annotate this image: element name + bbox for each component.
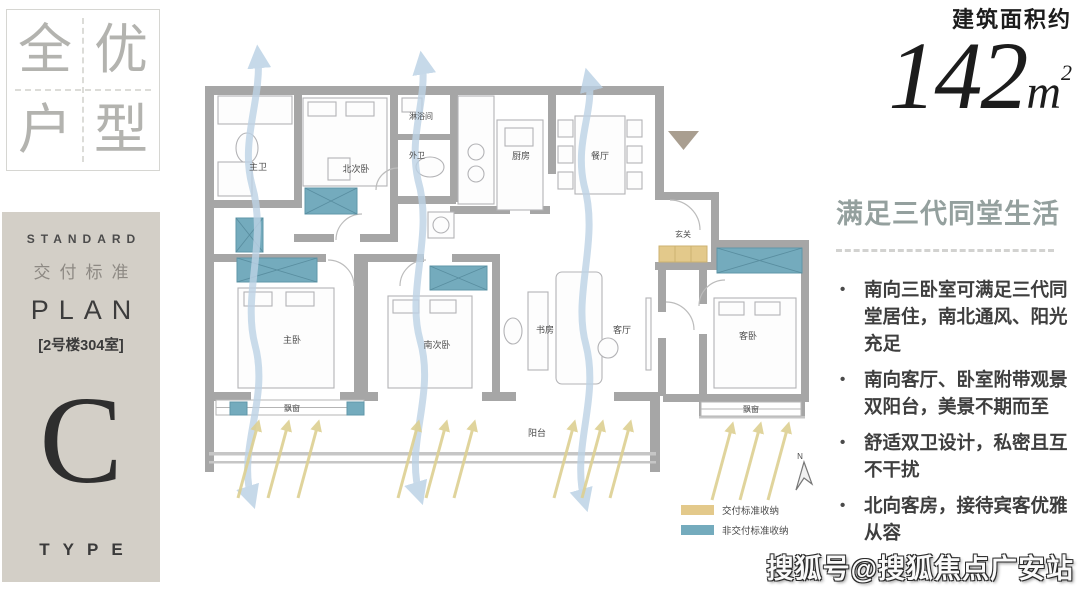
compass-arrow-icon bbox=[796, 462, 812, 490]
badge-char: 户 bbox=[7, 90, 83, 170]
balcony-rail bbox=[209, 452, 656, 464]
selling-points-list: 南向三卧室可满足三代同堂居住，南北通风、阳光充足 南向客厅、卧室附带观景双阳台，… bbox=[836, 276, 1074, 546]
room-label-balcony: 阳台 bbox=[528, 427, 546, 438]
entrance-marker-triangle bbox=[668, 131, 699, 150]
legend-swatch-non-standard bbox=[681, 525, 714, 535]
quality-layout-badge: 全 优 户 型 bbox=[6, 9, 160, 171]
room-label-guest-bedroom: 客卧 bbox=[739, 330, 757, 341]
room-label-shower: 淋浴间 bbox=[409, 111, 433, 121]
selling-point: 南向三卧室可满足三代同堂居住，南北通风、阳光充足 bbox=[836, 276, 1074, 357]
delivery-standard-label: 交付标准 bbox=[25, 258, 138, 283]
selling-points-heading: 满足三代同堂生活 bbox=[836, 192, 1074, 231]
area-number: 142 bbox=[888, 22, 1026, 129]
plan-legend: 交付标准收纳 非交付标准收纳 bbox=[681, 505, 789, 537]
area-unit: m bbox=[1026, 66, 1061, 119]
room-label-kitchen: 厨房 bbox=[512, 150, 530, 161]
plan-info-sidebar: STANDARD 交付标准 PLAN [2号楼304室] C TYPE bbox=[2, 212, 160, 582]
legend-label-non-standard: 非交付标准收纳 bbox=[722, 525, 789, 537]
unit-number: [2号楼304室] bbox=[38, 334, 123, 355]
plan-label: PLAN bbox=[21, 295, 142, 326]
room-label-study: 书房 bbox=[536, 324, 554, 335]
legend-swatch-standard bbox=[681, 505, 714, 515]
selling-point: 南向客厅、卧室附带观景双阳台，美景不期而至 bbox=[836, 366, 1074, 420]
badge-char: 型 bbox=[83, 90, 159, 170]
built-area-value: 142m2 bbox=[812, 28, 1072, 124]
area-unit-sup: 2 bbox=[1061, 60, 1072, 85]
standard-label-en: STANDARD bbox=[21, 232, 141, 246]
bay-window-label: 飘窗 bbox=[284, 403, 300, 413]
watermark-text: 搜狐号@搜狐焦点广安站 bbox=[767, 547, 1074, 586]
room-label-living: 客厅 bbox=[613, 324, 631, 335]
room-label-dining: 餐厅 bbox=[591, 150, 609, 161]
selling-point: 舒适双卫设计，私密且互不干扰 bbox=[836, 429, 1074, 483]
legend-label-standard: 交付标准收纳 bbox=[722, 505, 779, 517]
room-label-guest-bath: 外卫 bbox=[409, 150, 425, 160]
poster-canvas: 全 优 户 型 STANDARD 交付标准 PLAN [2号楼304室] C T… bbox=[0, 0, 1080, 590]
room-label-south-bedroom: 南次卧 bbox=[423, 339, 450, 350]
room-label-foyer: 玄关 bbox=[675, 229, 691, 239]
compass-letter: N bbox=[797, 452, 803, 461]
dashed-separator bbox=[836, 249, 1054, 252]
selling-points-panel: 满足三代同堂生活 南向三卧室可满足三代同堂居住，南北通风、阳光充足 南向客厅、卧… bbox=[836, 192, 1074, 555]
room-label-master-bedroom: 主卧 bbox=[283, 334, 301, 345]
type-label: TYPE bbox=[26, 540, 135, 560]
bay-window-label: 飘窗 bbox=[743, 404, 759, 414]
floor-plan: 主卫 北次卧 淋浴间 外卫 厨房 餐厅 玄关 主卧 南次卧 书房 客厅 客卧 阳… bbox=[195, 28, 845, 548]
compass-north: N bbox=[796, 452, 812, 490]
bay-windows bbox=[216, 400, 801, 416]
selling-point: 北向客房，接待宾客优雅从容 bbox=[836, 492, 1074, 546]
badge-char: 优 bbox=[83, 10, 159, 90]
badge-char: 全 bbox=[7, 10, 83, 90]
room-label-master-bath: 主卫 bbox=[249, 161, 267, 172]
badge-divider-horizontal bbox=[15, 89, 151, 91]
standard-storage-block bbox=[659, 246, 707, 262]
built-area-block: 建筑面积约 142m2 bbox=[812, 2, 1072, 124]
type-letter: C bbox=[39, 363, 122, 519]
room-label-north-bedroom: 北次卧 bbox=[342, 163, 369, 174]
